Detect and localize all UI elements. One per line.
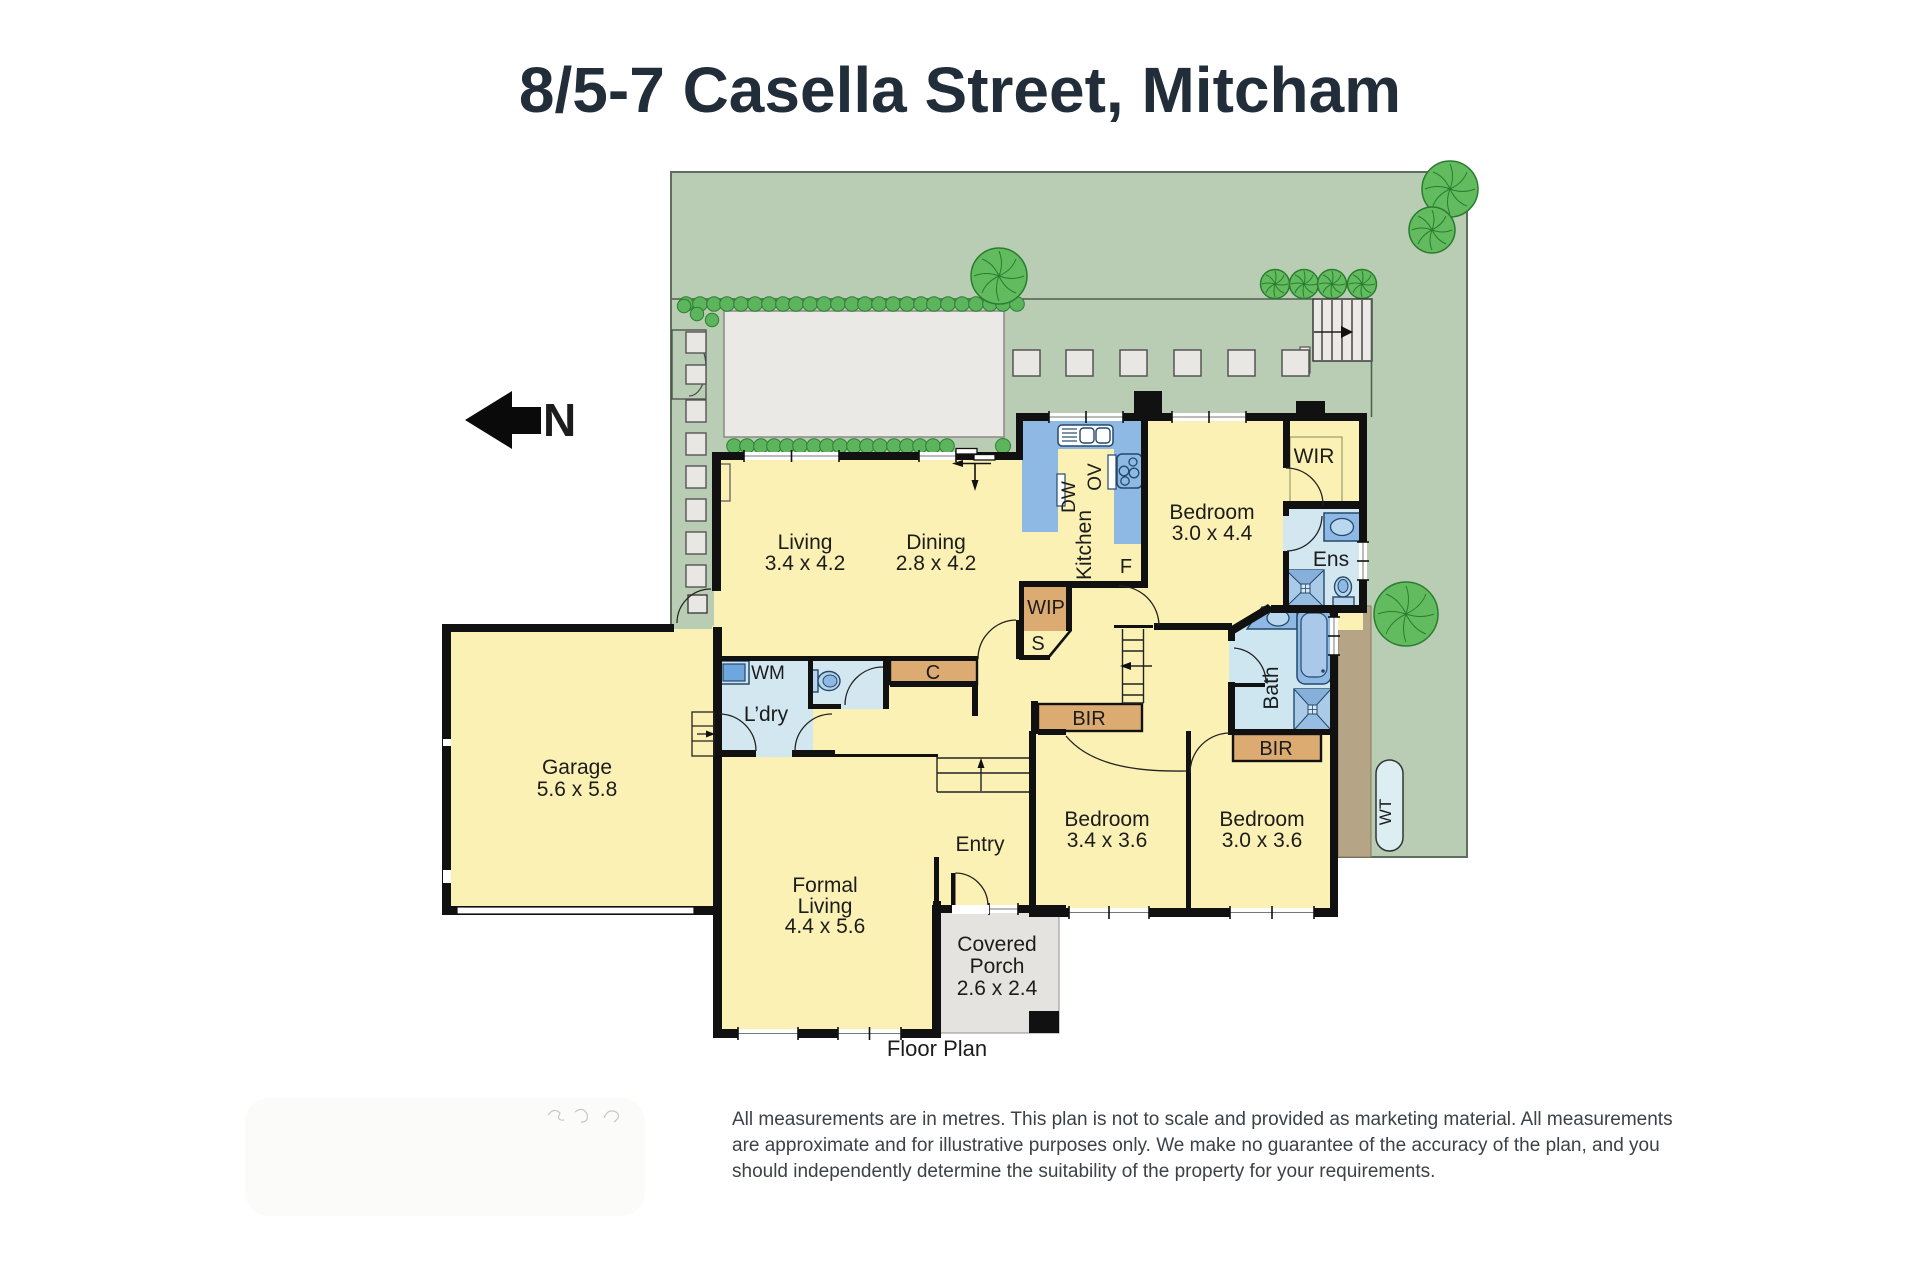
- svg-text:2.8 x 4.2: 2.8 x 4.2: [896, 552, 977, 575]
- svg-text:Kitchen: Kitchen: [1073, 510, 1096, 580]
- svg-text:Ens: Ens: [1313, 548, 1349, 571]
- svg-text:Dining: Dining: [906, 531, 966, 554]
- svg-text:Formal: Formal: [792, 874, 857, 897]
- svg-text:3.4 x 4.2: 3.4 x 4.2: [765, 552, 846, 575]
- svg-text:BIR: BIR: [1072, 708, 1105, 730]
- svg-text:WIP: WIP: [1027, 597, 1065, 619]
- svg-text:Porch: Porch: [970, 955, 1025, 978]
- svg-text:Bath: Bath: [1260, 666, 1283, 709]
- svg-text:N: N: [543, 394, 576, 446]
- svg-text:L’dry: L’dry: [744, 703, 789, 726]
- svg-text:4.4 x 5.6: 4.4 x 5.6: [785, 915, 866, 938]
- svg-text:S: S: [1031, 633, 1044, 655]
- svg-text:Covered: Covered: [957, 933, 1036, 956]
- svg-text:WM: WM: [751, 663, 785, 684]
- svg-text:Living: Living: [778, 531, 833, 554]
- svg-text:Bedroom: Bedroom: [1064, 808, 1149, 831]
- svg-text:C: C: [926, 662, 940, 684]
- svg-text:Floor Plan: Floor Plan: [887, 1036, 987, 1061]
- svg-text:5.6 x 5.8: 5.6 x 5.8: [537, 778, 618, 801]
- svg-text:BIR: BIR: [1259, 738, 1292, 760]
- svg-text:WT: WT: [1376, 799, 1395, 825]
- svg-text:2.6 x 2.4: 2.6 x 2.4: [957, 977, 1038, 1000]
- svg-text:WIR: WIR: [1294, 445, 1335, 468]
- svg-text:DW: DW: [1059, 481, 1080, 513]
- svg-text:OV: OV: [1085, 463, 1106, 491]
- svg-text:3.0 x 3.6: 3.0 x 3.6: [1222, 829, 1303, 852]
- svg-text:Bedroom: Bedroom: [1219, 808, 1304, 831]
- svg-text:F: F: [1120, 556, 1132, 578]
- svg-text:Bedroom: Bedroom: [1169, 501, 1254, 524]
- svg-text:Garage: Garage: [542, 756, 612, 779]
- svg-text:3.4 x 3.6: 3.4 x 3.6: [1067, 829, 1148, 852]
- svg-text:3.0 x 4.4: 3.0 x 4.4: [1172, 522, 1253, 545]
- svg-text:Entry: Entry: [955, 833, 1005, 856]
